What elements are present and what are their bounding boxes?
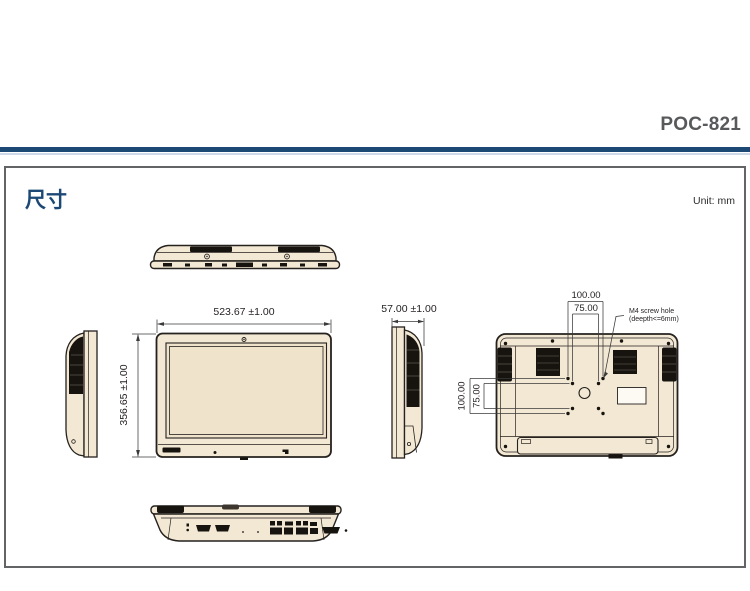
front-view-drawing: [132, 320, 331, 461]
right-side-view-drawing: [392, 318, 424, 458]
left-side-view-drawing: [66, 331, 97, 457]
vesa-width-outer-label: 100.00: [571, 290, 600, 301]
top-view-drawing: [151, 246, 340, 269]
bottom-view-drawing: [151, 505, 347, 542]
front-width-dim-label: 523.67 ±1.00: [213, 306, 274, 318]
front-height-dim-label: 356.65 ±1.00: [118, 364, 130, 425]
technical-drawing: [0, 0, 750, 591]
vesa-height-inner-label: 75.00: [472, 384, 483, 408]
vesa-height-outer-label: 100.00: [457, 381, 468, 410]
m4-screw-note-line2: (deepth<=6mm): [629, 316, 679, 324]
m4-screw-note-line1: M4 screw hole: [629, 308, 674, 316]
rear-view-drawing: [470, 302, 678, 459]
datasheet-page: POC-821 尺寸 Unit: mm: [0, 0, 750, 591]
depth-dim-label: 57.00 ±1.00: [381, 303, 436, 315]
vesa-width-inner-label: 75.00: [574, 303, 598, 314]
